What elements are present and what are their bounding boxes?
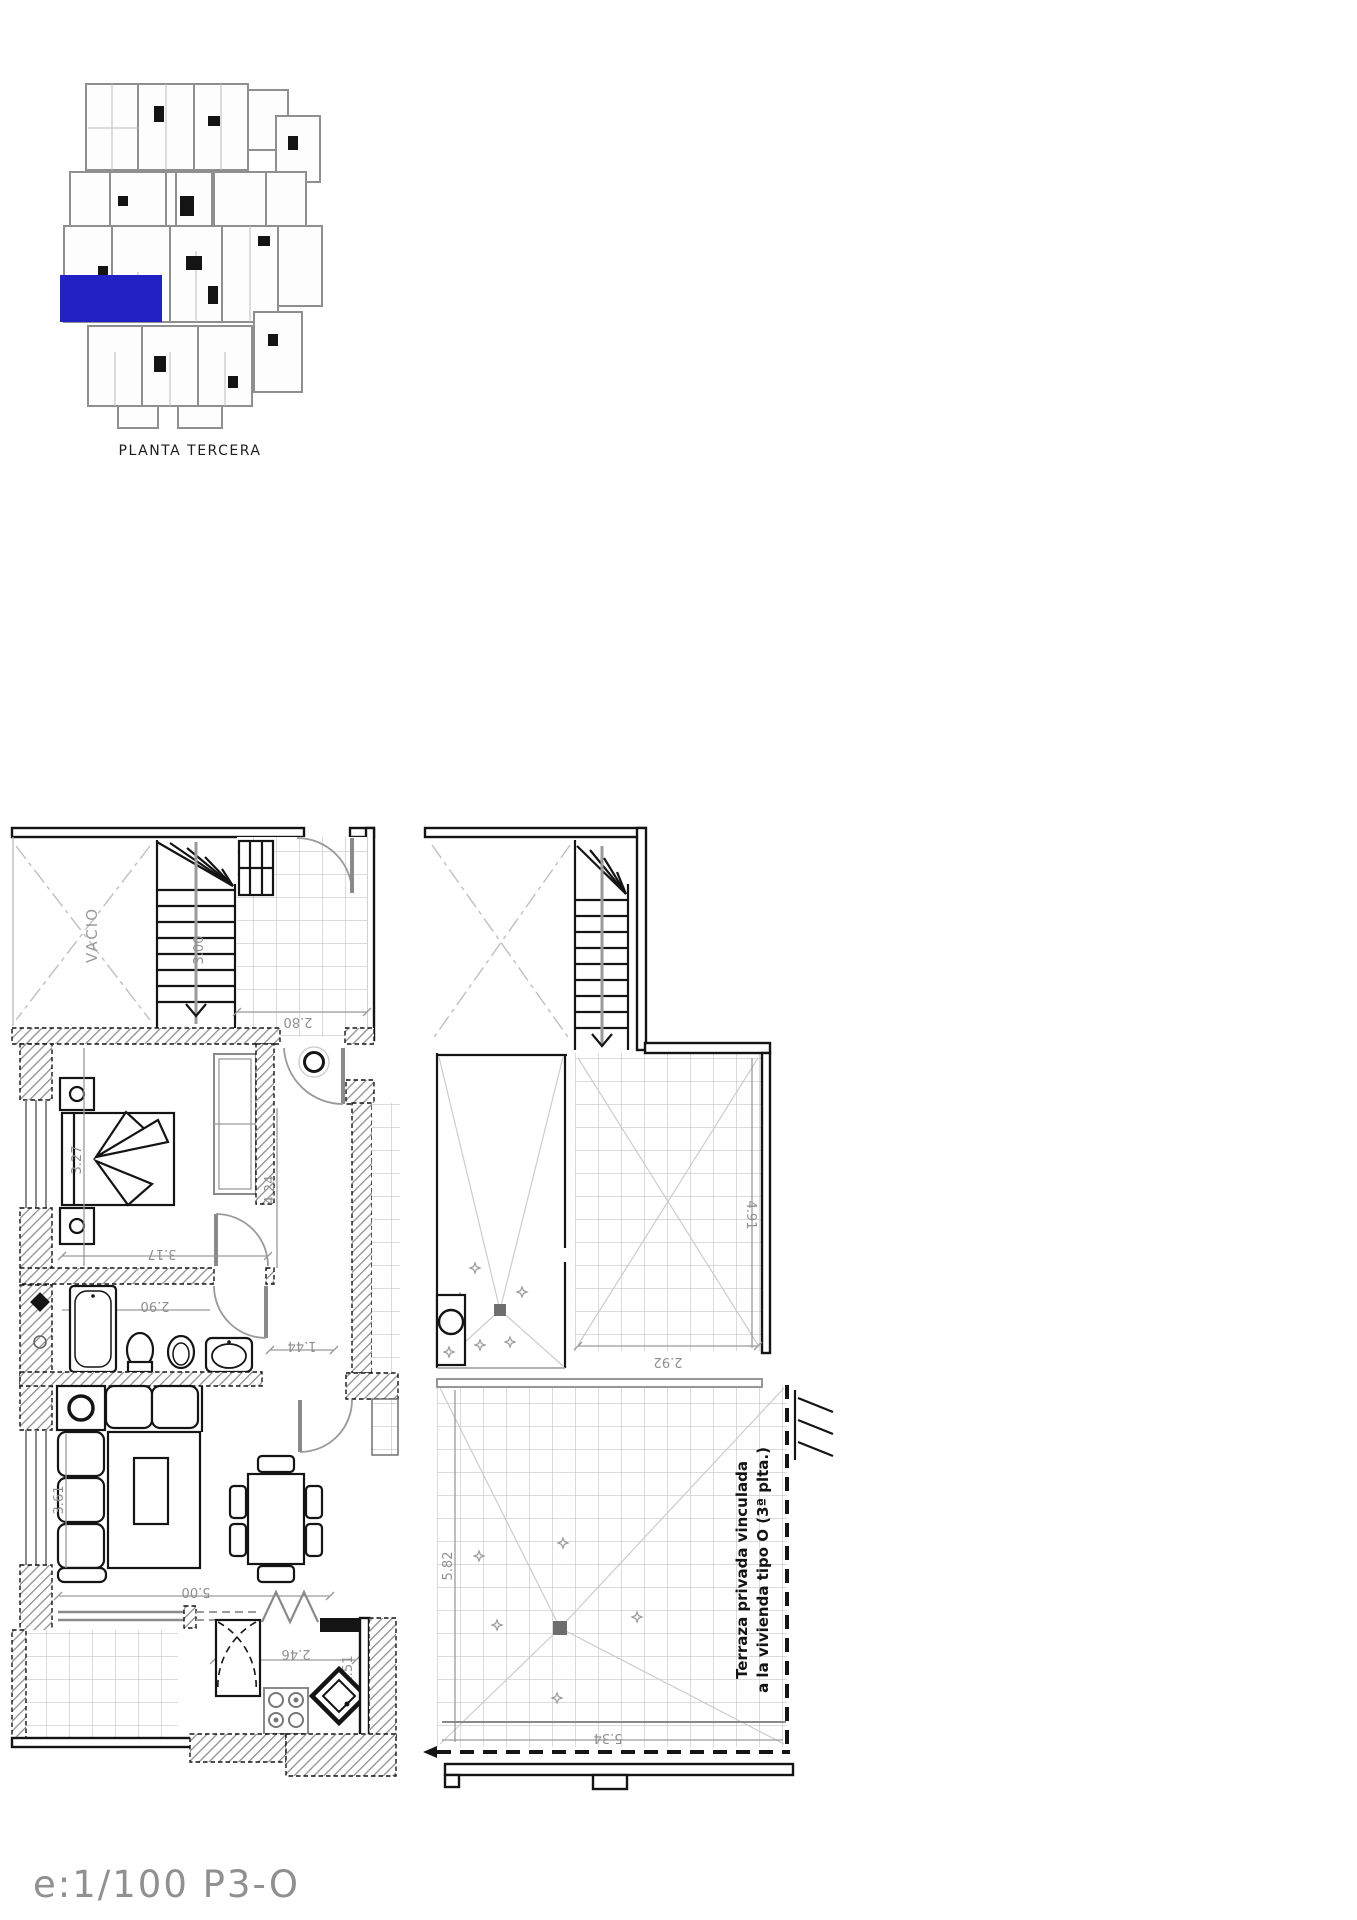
bathtub — [70, 1286, 116, 1372]
window-living — [26, 1430, 46, 1565]
kitchen: 2.46 1.51 — [190, 1618, 396, 1776]
wardrobe — [214, 1054, 256, 1194]
wall-kitchen-bottom2 — [286, 1734, 396, 1776]
side-table — [57, 1386, 105, 1430]
window-bedroom — [26, 1100, 46, 1208]
dining-table — [230, 1456, 322, 1582]
wall-upper-terrace-right — [762, 1053, 770, 1353]
nightstand-bottom — [60, 1208, 94, 1244]
svg-text:5.82: 5.82 — [441, 1552, 456, 1581]
svg-text:Terraza privada vinculada: Terraza privada vinculada — [733, 1461, 751, 1679]
wall-bedroom-bottom — [20, 1268, 214, 1284]
dining-chair — [258, 1566, 294, 1582]
dining-chair — [306, 1486, 322, 1518]
dim-upper-terrace-width: 2.92 — [574, 1342, 762, 1369]
upper-terrace: 4.91 2.92 — [574, 1043, 770, 1369]
entry-nook — [284, 1047, 374, 1104]
dim-stair-flight: 3.00 — [192, 936, 207, 965]
svg-text:3.61: 3.61 — [52, 1486, 67, 1515]
bidet — [127, 1333, 153, 1372]
stair-upper-left: 3.00 — [157, 840, 235, 1032]
boundary-arrow — [423, 1746, 437, 1758]
door-arc-bathroom — [214, 1286, 266, 1338]
wall-kitchen-right — [360, 1618, 369, 1740]
svg-text:4.24: 4.24 — [263, 1176, 278, 1205]
room-vacio: VACIO — [13, 837, 150, 1026]
wall-bathroom-bottom — [20, 1372, 262, 1386]
dining-chair — [306, 1524, 322, 1556]
wall-upper-terrace-top — [645, 1043, 770, 1053]
coffee-table — [108, 1432, 200, 1568]
door-arc-kitchen — [300, 1400, 352, 1452]
wall-pillar-hall-bottom — [346, 1373, 398, 1399]
main-terrace: 5.82 5.34 Terraza privada vinculada a la… — [423, 1379, 833, 1789]
svg-text:2.46: 2.46 — [282, 1646, 311, 1661]
stair-upper-right — [575, 840, 628, 1050]
terrace-parapet-top — [437, 1379, 762, 1387]
dim-hall-width: 1.44 — [266, 1338, 338, 1354]
toilet — [168, 1336, 194, 1368]
wall-band-1 — [12, 1028, 280, 1044]
dim-living-length: 5.00 — [54, 1584, 334, 1600]
key-plan-units — [64, 84, 322, 428]
storage-cupboard — [239, 841, 273, 895]
scale-label: e:1/100 P3-O — [33, 1863, 300, 1906]
balcony-parapet — [12, 1738, 202, 1747]
key-plan-highlight — [60, 275, 162, 322]
boiler — [305, 1053, 324, 1072]
wall-bedroom-bottom2 — [266, 1268, 274, 1284]
svg-text:2.90: 2.90 — [141, 1298, 170, 1313]
floor-plan: VACIO 3.00 — [12, 828, 833, 1789]
floor-drain — [494, 1304, 506, 1316]
balcony — [12, 1630, 202, 1747]
door-arc-bedroom — [216, 1214, 268, 1266]
wall-kitchen-right-hatch — [369, 1618, 396, 1740]
wall-top-right — [425, 828, 645, 837]
floor-drain — [553, 1621, 567, 1635]
dining-chair — [230, 1524, 246, 1556]
shower-fixture — [437, 1295, 465, 1365]
fridge — [216, 1620, 260, 1696]
wall-terrace-bottom — [445, 1764, 793, 1789]
wall-pillar-entry — [346, 1080, 374, 1104]
svg-text:2.80: 2.80 — [284, 1014, 313, 1029]
hob — [264, 1688, 308, 1734]
dining-chair — [230, 1486, 246, 1518]
washbasin — [206, 1338, 252, 1372]
open-room-upper-right — [432, 845, 570, 1040]
dining-chair — [258, 1456, 294, 1472]
svg-text:3.17: 3.17 — [148, 1246, 177, 1261]
corner-sink — [312, 1669, 366, 1723]
svg-text:5.34: 5.34 — [594, 1730, 623, 1745]
plan-canvas: PLANTA TERCERA VACIO — [0, 0, 1357, 1920]
key-plan — [60, 84, 322, 428]
dim-bedroom-length: 3.17 — [58, 1246, 272, 1261]
upper-landing: 2.80 — [233, 837, 371, 1037]
nightstand-top — [60, 1078, 94, 1110]
ledge-tiles — [372, 1103, 400, 1373]
wall-top-left — [12, 828, 304, 837]
neighbor-structure — [795, 1390, 833, 1460]
wall-band-1b — [345, 1028, 374, 1044]
wall-right-upper — [637, 828, 646, 1050]
drawing-sheet: PLANTA TERCERA VACIO — [0, 0, 1357, 1920]
bathroom: 2.90 — [20, 1286, 262, 1386]
svg-text:2.92: 2.92 — [654, 1354, 683, 1369]
svg-text:a la vivienda tipo O (3ª plta.: a la vivienda tipo O (3ª plta.) — [754, 1447, 772, 1693]
ledge-window — [372, 1399, 398, 1455]
bedroom: 3.27 3.17 — [20, 1044, 274, 1284]
svg-text:5.00: 5.00 — [182, 1584, 211, 1599]
wall-kitchen-bottom1 — [190, 1734, 286, 1762]
svg-text:1.44: 1.44 — [288, 1338, 317, 1353]
svg-text:3.27: 3.27 — [70, 1146, 85, 1175]
vacio-label: VACIO — [83, 907, 101, 963]
exterior-wall-left — [20, 1044, 52, 1643]
solarium-room — [437, 1053, 567, 1368]
wall-hall-east — [352, 1103, 372, 1373]
svg-text:4.91: 4.91 — [743, 1201, 758, 1230]
balcony-tiles — [26, 1630, 178, 1738]
living-room: 3.61 5.00 — [52, 1386, 374, 1632]
key-plan-label: PLANTA TERCERA — [119, 443, 262, 459]
